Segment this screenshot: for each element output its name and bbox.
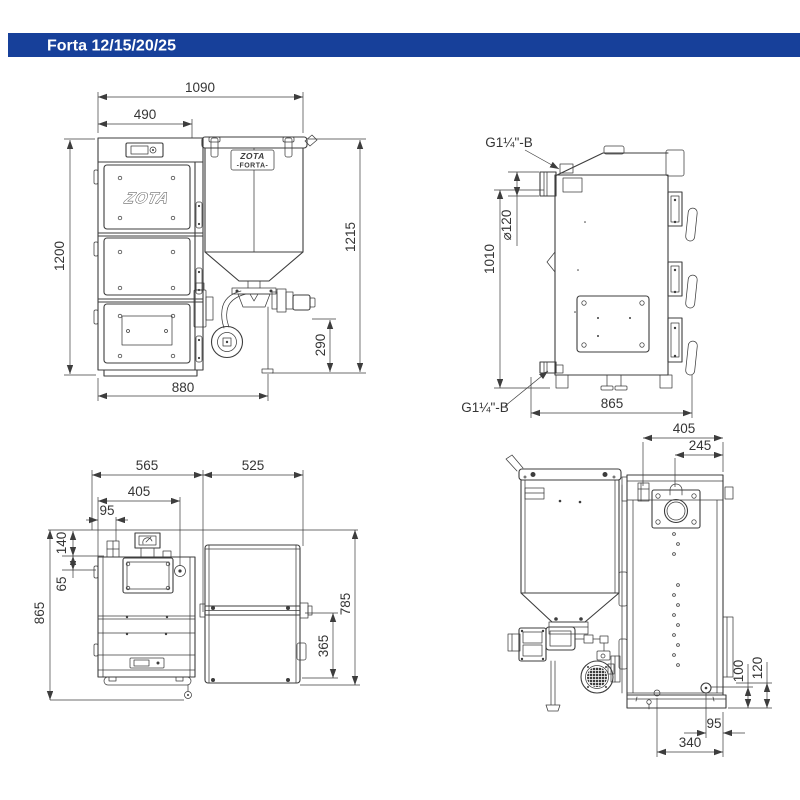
page-title: Forta 12/15/20/25	[47, 38, 176, 55]
header: Forta 12/15/20/25	[8, 33, 800, 57]
boiler-dimension-drawing: Forta 12/15/20/25	[0, 0, 800, 800]
dim-plan-95: 95	[99, 503, 114, 518]
dim-rear-120: 120	[750, 657, 765, 680]
dim-body-height: 1200	[52, 241, 67, 271]
page-background	[0, 0, 800, 800]
dim-plan-405: 405	[128, 484, 151, 499]
dim-rear-340: 340	[679, 735, 702, 750]
hopper-plate-logo: ZOTA	[239, 151, 265, 161]
label-supply-fitting: G1¼"-B	[485, 135, 533, 150]
dim-hopper-depth: 525	[242, 458, 265, 473]
dim-rear-95: 95	[706, 716, 721, 731]
dim-plan-65: 65	[54, 576, 69, 591]
dim-burner-height: 290	[313, 334, 328, 357]
door-logo: ZOTA	[122, 190, 171, 207]
hopper-name-plate: ZOTA -FORTA-	[231, 150, 274, 170]
label-return-fitting: G1¼"-B	[461, 400, 509, 415]
dim-flue-diameter: ⌀120	[499, 210, 514, 241]
dim-overall-height: 1215	[343, 222, 358, 252]
dim-plan-140: 140	[54, 532, 69, 555]
dim-rear-405: 405	[673, 421, 696, 436]
dim-side-depth: 865	[601, 396, 624, 411]
dim-rear-245: 245	[689, 438, 712, 453]
dim-plan-365: 365	[316, 635, 331, 658]
dim-base-width: 880	[172, 380, 195, 395]
dim-plan-865: 865	[32, 602, 47, 625]
dim-rear-100: 100	[731, 660, 746, 683]
dim-overall-width: 1090	[185, 80, 215, 95]
hopper-plate-model: -FORTA-	[237, 163, 269, 170]
dim-body-depth: 565	[136, 458, 159, 473]
dim-flue-height: 1010	[482, 244, 497, 274]
dim-body-width: 490	[134, 107, 157, 122]
dim-plan-785: 785	[338, 593, 353, 616]
